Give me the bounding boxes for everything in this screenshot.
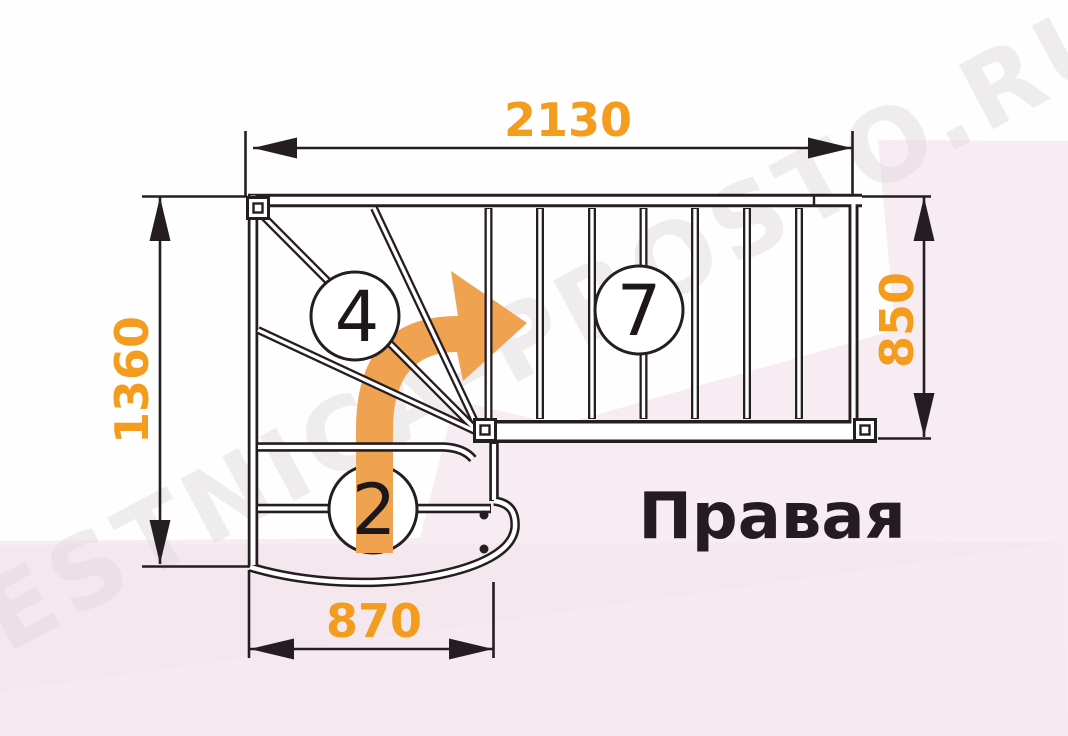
winder-step-count: 4 <box>335 276 380 358</box>
staircase-plan-drawing: LESTNICA-PROSTO.RU 2130 1360 850 870 <box>0 0 1068 736</box>
baluster-dot <box>480 545 489 554</box>
dimension-right-label: 850 <box>870 272 924 368</box>
dimension-left-label: 1360 <box>105 316 159 444</box>
lower-flight-step-count: 2 <box>352 469 397 551</box>
dimension-top-label: 2130 <box>504 93 632 147</box>
upper-flight-step-count: 7 <box>617 270 662 352</box>
newel-post-core <box>254 204 263 213</box>
staircase-plan-canvas: LESTNICA-PROSTO.RU 2130 1360 850 870 <box>0 0 1068 736</box>
newel-post-core <box>481 426 490 435</box>
orientation-label: Правая <box>638 480 905 554</box>
newel-post-core <box>861 426 870 435</box>
baluster-dot <box>480 511 489 520</box>
dimension-bottom-label: 870 <box>326 594 422 648</box>
